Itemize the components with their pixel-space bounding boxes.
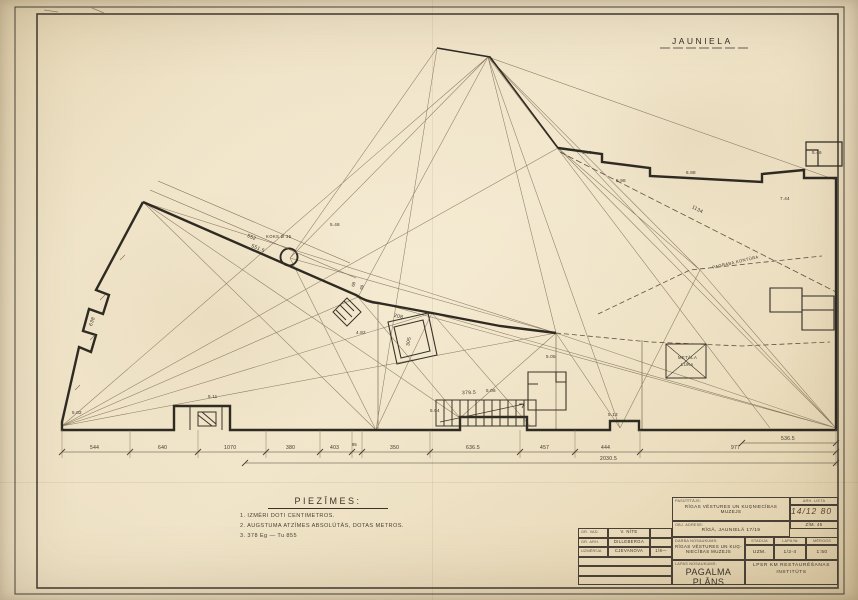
sheet-name-value: PAGALMA PLĀNS [673,567,744,587]
boundary-walls [62,48,842,430]
svg-text:1070: 1070 [224,445,236,451]
dashed-contours [556,152,836,346]
svg-text:5.04: 5.04 [430,408,440,413]
svg-text:552: 552 [246,233,257,242]
svg-text:4.82: 4.82 [356,330,366,335]
street-label: JAUNIELA [672,36,733,46]
institute-name: LPSR KM RESTAURĒŠANAS INSTITŪTS [746,561,837,578]
sheet-no-header: LAPA № [775,538,805,544]
notes-block: PIEZĪMES: 1. IZMĒRI DOTI CENTIMETROS. 2.… [240,496,450,539]
svg-text:544: 544 [90,445,99,451]
chain-dimension-values: 544 640 1070 380 403 85 350 636.5 457 44… [90,436,795,462]
triangulation-lines [62,48,836,430]
sig-row-value: DILLEBERGA [609,539,649,544]
client-value: MUZEJS [673,509,789,514]
svg-text:85: 85 [352,442,357,447]
svg-text:536.5: 536.5 [781,436,795,442]
metal-hatch-label: LŪKA [681,362,694,367]
sig-row-label: UZMĒRĪJA [579,548,607,554]
drawing-sheet: JAUNIELA PAGRABA KONTŪRA METĀLA LŪKA KOK… [0,0,858,600]
sig-row-value: CJEVANOVA [609,548,649,553]
svg-text:977: 977 [731,445,740,451]
svg-text:208: 208 [393,313,403,321]
svg-text:2030.5: 2030.5 [600,456,617,462]
svg-text:636.5: 636.5 [466,445,480,451]
svg-text:5.96: 5.96 [582,150,592,155]
stairs [436,400,536,426]
svg-text:69: 69 [359,284,365,290]
svg-text:350: 350 [390,445,399,451]
arch-file-date-handwritten: 14/12 80 [791,506,832,516]
elevation-marks: 5.02 5.11 5.48 4.82 5.06 5.04 5.05 5.96 … [72,150,822,417]
rotated-dimension-values: 1134 552 551.5 68 69 379.5 305 208 638 [88,204,704,396]
svg-text:380: 380 [286,445,295,451]
svg-text:640: 640 [158,445,167,451]
dimension-ticks [59,440,839,466]
note-line: 3. 378 Eg — Tu 855 [240,533,450,539]
svg-text:5.06: 5.06 [486,388,496,393]
arch-file-header: ARH. LIETA [791,498,837,504]
sheet-no-value: 1/2-4 [775,546,805,559]
metal-hatch-label: METĀLA [678,355,697,360]
svg-text:6.88: 6.88 [686,170,696,175]
svg-text:379.5: 379.5 [462,390,476,396]
stage-header: STADIJA [746,538,773,544]
sig-row-label: GR. VAD. [579,529,607,535]
dimension-chain [59,430,839,466]
svg-text:7.44: 7.44 [780,196,790,201]
note-line: 2. AUGSTUMA ATZĪMES ABSOLŪTĀS, DOTAS MET… [240,523,450,529]
scale-header: MĒROGS [807,538,837,544]
notes-title: PIEZĪMES: [268,496,388,509]
svg-text:1134: 1134 [691,204,704,215]
svg-text:5.13: 5.13 [608,412,618,417]
sig-row-label: GR. ARH. [579,539,607,545]
arch-sheet-no: ZĪM. 45 [791,522,837,527]
address-value: RĪGĀ, JAUNIELĀ 17/19 [673,528,789,533]
edge-dimension-lines [75,181,356,390]
note-line: 1. IZMĒRI DOTI CENTIMETROS. [240,513,450,519]
svg-text:305: 305 [405,336,413,346]
svg-text:444: 444 [601,445,610,451]
svg-text:403: 403 [330,445,339,451]
stage-value: UZM. [746,546,773,559]
svg-text:68: 68 [350,281,356,287]
work-value: NIECĪBAS MUZEJS [673,549,744,554]
scale-value: 1:50 [807,546,837,559]
svg-text:5.11: 5.11 [208,394,218,399]
svg-text:638: 638 [88,316,97,327]
svg-text:5.98: 5.98 [616,178,626,183]
svg-text:5.02: 5.02 [72,410,82,415]
basement-contour-label: PAGRABA KONTŪRA [712,254,759,270]
svg-text:5.48: 5.48 [330,222,340,227]
sig-row-extra: 1/8— [651,548,671,553]
svg-text:5.46: 5.46 [812,150,822,155]
svg-text:5.05: 5.05 [546,354,556,359]
sig-row-value: V. NĪTE [609,529,649,534]
svg-text:457: 457 [540,445,549,451]
tree-label: KOKS Ø 35 [266,234,292,239]
